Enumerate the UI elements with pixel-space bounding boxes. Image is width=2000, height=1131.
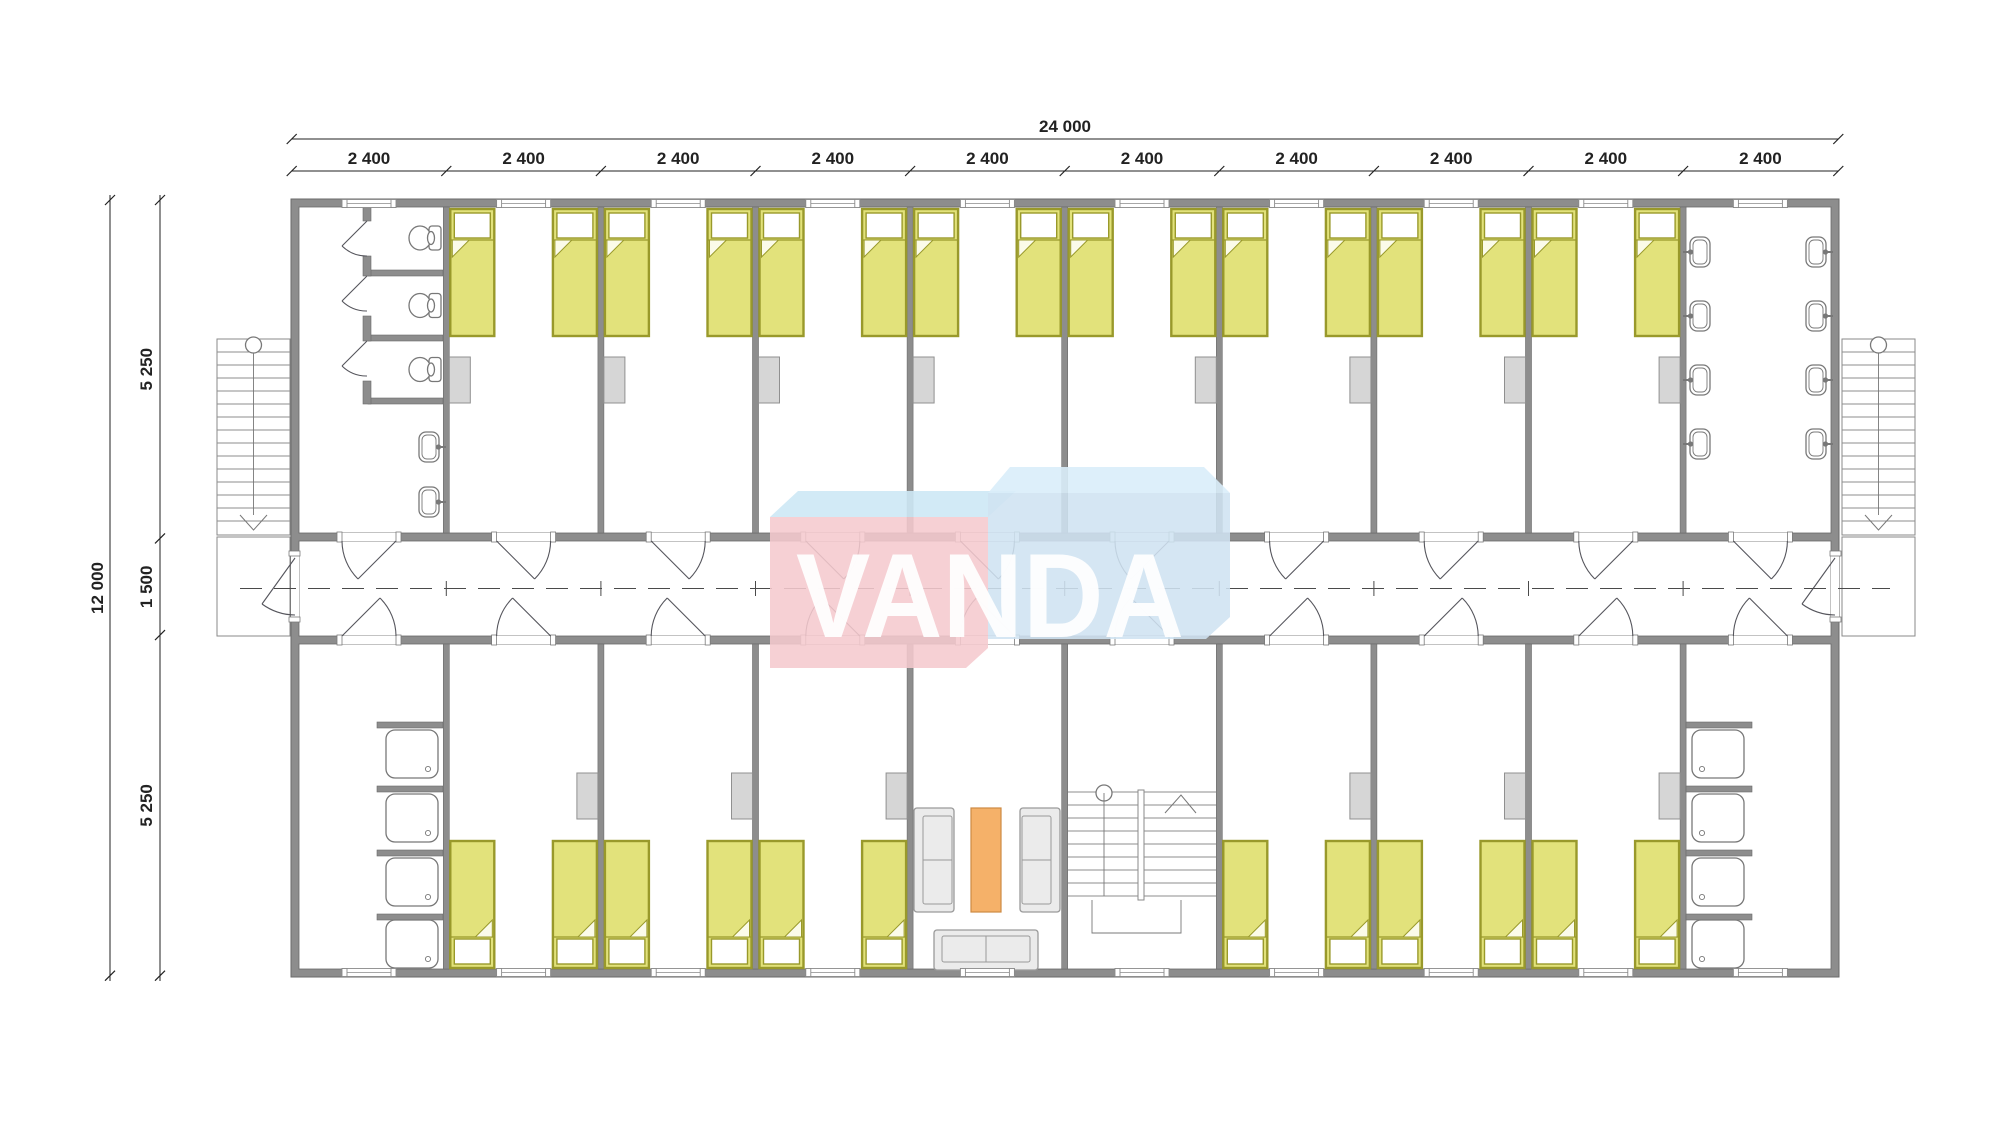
bed [708,841,752,968]
dim-label-module-7: 2 400 [1275,149,1318,168]
bed [1635,841,1679,968]
dimension-top-total: 24 000 [287,117,1844,144]
bed [605,209,649,336]
bed [1481,209,1525,336]
bed [1481,841,1525,968]
watermark-logo: VANDA [770,467,1230,668]
shower-icon [1692,730,1744,778]
bed [553,209,597,336]
bed [450,209,494,336]
dimension-top-segments: 2 400 2 400 2 400 2 400 2 400 2 400 2 40… [287,149,1844,176]
dim-label-module-5: 2 400 [966,149,1009,168]
dim-label-lower-depth: 5 250 [137,784,156,827]
coffee-table [971,808,1001,912]
dim-label-module-3: 2 400 [657,149,700,168]
dim-label-module-8: 2 400 [1430,149,1473,168]
entry-landing-right [1842,537,1915,636]
toilet-icon [409,226,441,250]
bed [1378,841,1422,968]
bed [1326,841,1370,968]
dim-label-module-4: 2 400 [812,149,855,168]
external-staircase-right [1842,337,1915,535]
dim-label-module-9: 2 400 [1585,149,1628,168]
entry-landing-left [217,537,290,636]
shower-icon [1692,858,1744,906]
watermark-top-face-right [988,467,1230,493]
floor-plan-drawing: 24 000 2 400 2 400 2 400 2 400 2 400 2 4… [0,0,2000,1131]
bed [605,841,649,968]
dim-label-total-height: 12 000 [88,562,107,614]
bed [450,841,494,968]
shower-icon [1692,794,1744,842]
dim-label-upper-depth: 5 250 [137,348,156,391]
dimension-left-segments: 5 250 1 500 5 250 [137,195,165,981]
bed [1635,209,1679,336]
watermark-top-face-left [770,491,1016,517]
dim-label-module-6: 2 400 [1121,149,1164,168]
bed [1378,209,1422,336]
bed [1223,841,1267,968]
bed [708,209,752,336]
shower-icon [386,794,438,842]
bed [760,209,804,336]
shower-icon [386,730,438,778]
toilet-icon [409,358,441,382]
dim-label-module-1: 2 400 [348,149,391,168]
bed [862,209,906,336]
toilet-icon [409,294,441,318]
dimension-left-total: 12 000 [88,195,115,981]
floor-plan-page: 24 000 2 400 2 400 2 400 2 400 2 400 2 4… [0,0,2000,1131]
dim-label-module-10: 2 400 [1739,149,1782,168]
bed [553,841,597,968]
dim-label-corridor-depth: 1 500 [137,566,156,609]
shower-icon [386,858,438,906]
dim-label-total-width: 24 000 [1039,117,1091,136]
shower-icon [386,920,438,968]
dim-label-module-2: 2 400 [502,149,545,168]
external-staircase-left [217,337,290,535]
bed [1069,209,1113,336]
bed [1533,841,1577,968]
bed [1533,209,1577,336]
bed [1223,209,1267,336]
bed [760,841,804,968]
shower-icon [1692,920,1744,968]
lounge [914,808,1060,970]
bed [1326,209,1370,336]
bed [862,841,906,968]
bed [1017,209,1061,336]
watermark-text: VANDA [796,529,1184,663]
bed [914,209,958,336]
bed [1171,209,1215,336]
